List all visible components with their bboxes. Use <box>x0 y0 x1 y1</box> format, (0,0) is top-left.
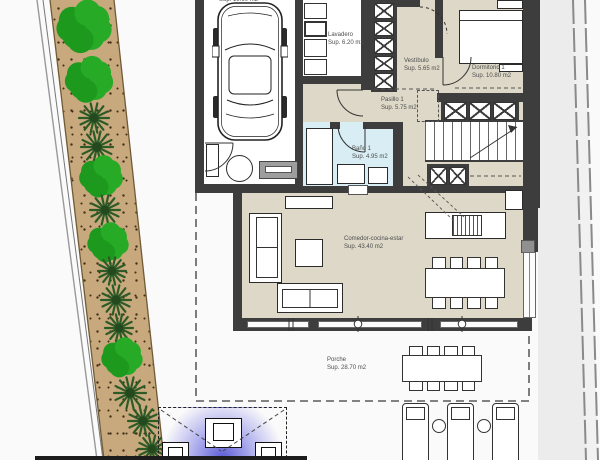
wall <box>303 76 363 84</box>
sun-lounger-icon <box>402 403 429 460</box>
water-heater-icon <box>206 144 219 177</box>
bed-icon <box>459 10 523 64</box>
shower-icon <box>306 128 333 185</box>
wall <box>303 186 532 193</box>
wall <box>233 188 242 330</box>
window <box>318 321 422 328</box>
sun-lounger-icon <box>492 403 519 460</box>
car-icon <box>212 2 288 142</box>
closet-icon <box>427 164 469 188</box>
room-area: Sup. 5.75 m2 <box>381 105 417 113</box>
fence-line <box>573 0 586 460</box>
loungers-area <box>402 403 527 460</box>
closet-icon <box>371 0 397 92</box>
coffee-table-icon <box>295 239 323 267</box>
porch-dining-set <box>402 346 482 391</box>
side-yard <box>538 0 586 460</box>
sofa-icon <box>277 283 343 313</box>
room-label-bano1: Baño 1 Sup. 4.95 m2 <box>352 146 388 162</box>
room-area: Sup. 4.95 m2 <box>352 154 388 162</box>
room-area: Sup. 5.65 m2 <box>404 66 440 74</box>
room-name: Porche <box>327 357 366 365</box>
room-label-garage: Sup. 19.60 m2 <box>219 0 258 5</box>
nightstand-icon <box>497 0 523 9</box>
cooktop-icon <box>452 215 482 236</box>
pergola-area <box>158 407 287 460</box>
room-name: Dormitorio 1 <box>472 65 511 73</box>
room-label-vestibulo: Vestíbulo Sup. 5.65 m2 <box>404 58 440 74</box>
stairs-icon <box>425 120 523 162</box>
wall <box>393 0 420 7</box>
floorplan-canvas: Sup. 19.60 m2 Lavadero Sup. 6.20 m2 Vest… <box>0 0 600 460</box>
site-edge-bar <box>35 456 307 460</box>
wall <box>195 0 204 192</box>
equipment-box-icon <box>259 161 298 179</box>
room-label-pasillo1: Pasillo 1 Sup. 5.75 m2 <box>381 97 417 113</box>
dining-set <box>425 257 505 309</box>
window <box>440 321 518 328</box>
wall <box>523 0 540 208</box>
room-name: Lavadero <box>328 32 364 40</box>
room-label-porche: Porche Sup. 28.70 m2 <box>327 357 366 373</box>
sofa-icon <box>249 213 282 283</box>
appliance-icon <box>505 190 523 210</box>
room-name: Pasillo 1 <box>381 97 417 105</box>
boiler-icon <box>226 155 253 182</box>
sink-icon <box>348 185 368 195</box>
window <box>523 252 536 318</box>
room-area: Sup. 43.40 m2 <box>344 244 403 252</box>
room-label-comedor: Comedor-cocina-estar Sup. 43.40 m2 <box>344 236 403 252</box>
pergola-chair-icon <box>205 418 242 448</box>
wall <box>393 122 403 193</box>
room-area: Sup. 6.20 m2 <box>328 40 364 48</box>
room-name: Comedor-cocina-estar <box>344 236 403 244</box>
room-label-dormitorio1: Dormitorio 1 Sup. 10.80 m2 <box>472 65 511 81</box>
side-table-icon <box>477 419 491 433</box>
sideboard-icon <box>285 196 333 209</box>
void-dashed-outline <box>417 90 439 122</box>
fence-strip <box>573 0 598 460</box>
vanity-icon <box>337 164 365 184</box>
room-area: Sup. 28.70 m2 <box>327 365 366 373</box>
room-name: Vestíbulo <box>404 58 440 66</box>
room-area: Sup. 19.60 m2 <box>219 0 258 5</box>
vanity-icon <box>368 167 388 184</box>
dining-table-icon <box>425 268 505 298</box>
wall <box>435 0 443 58</box>
fence-line <box>585 0 598 460</box>
sun-lounger-icon <box>447 403 474 460</box>
room-area: Sup. 10.80 m2 <box>472 73 511 81</box>
cabinet-icon <box>304 3 327 75</box>
wall <box>195 184 303 193</box>
room-name: Baño 1 <box>352 146 388 154</box>
window <box>247 321 309 328</box>
porch-table-icon <box>402 355 482 382</box>
room-label-lavadero: Lavadero Sup. 6.20 m2 <box>328 32 364 48</box>
side-table-icon <box>432 419 446 433</box>
